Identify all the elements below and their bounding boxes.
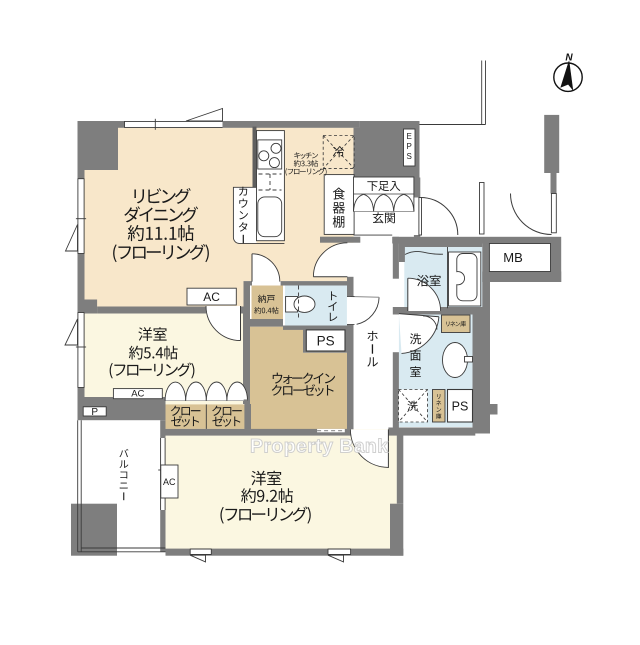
svg-text:P: P	[407, 142, 412, 151]
svg-text:PS: PS	[317, 333, 335, 348]
svg-text:AC: AC	[131, 389, 144, 400]
svg-text:Property Bank: Property Bank	[250, 436, 389, 458]
svg-text:AC: AC	[203, 290, 220, 304]
svg-text:E: E	[407, 132, 412, 141]
svg-text:PS: PS	[452, 400, 469, 414]
svg-text:MB: MB	[503, 250, 523, 265]
svg-text:P: P	[91, 407, 98, 418]
svg-text:AC: AC	[163, 477, 176, 487]
svg-text:N: N	[565, 53, 573, 64]
svg-text:S: S	[407, 152, 412, 161]
